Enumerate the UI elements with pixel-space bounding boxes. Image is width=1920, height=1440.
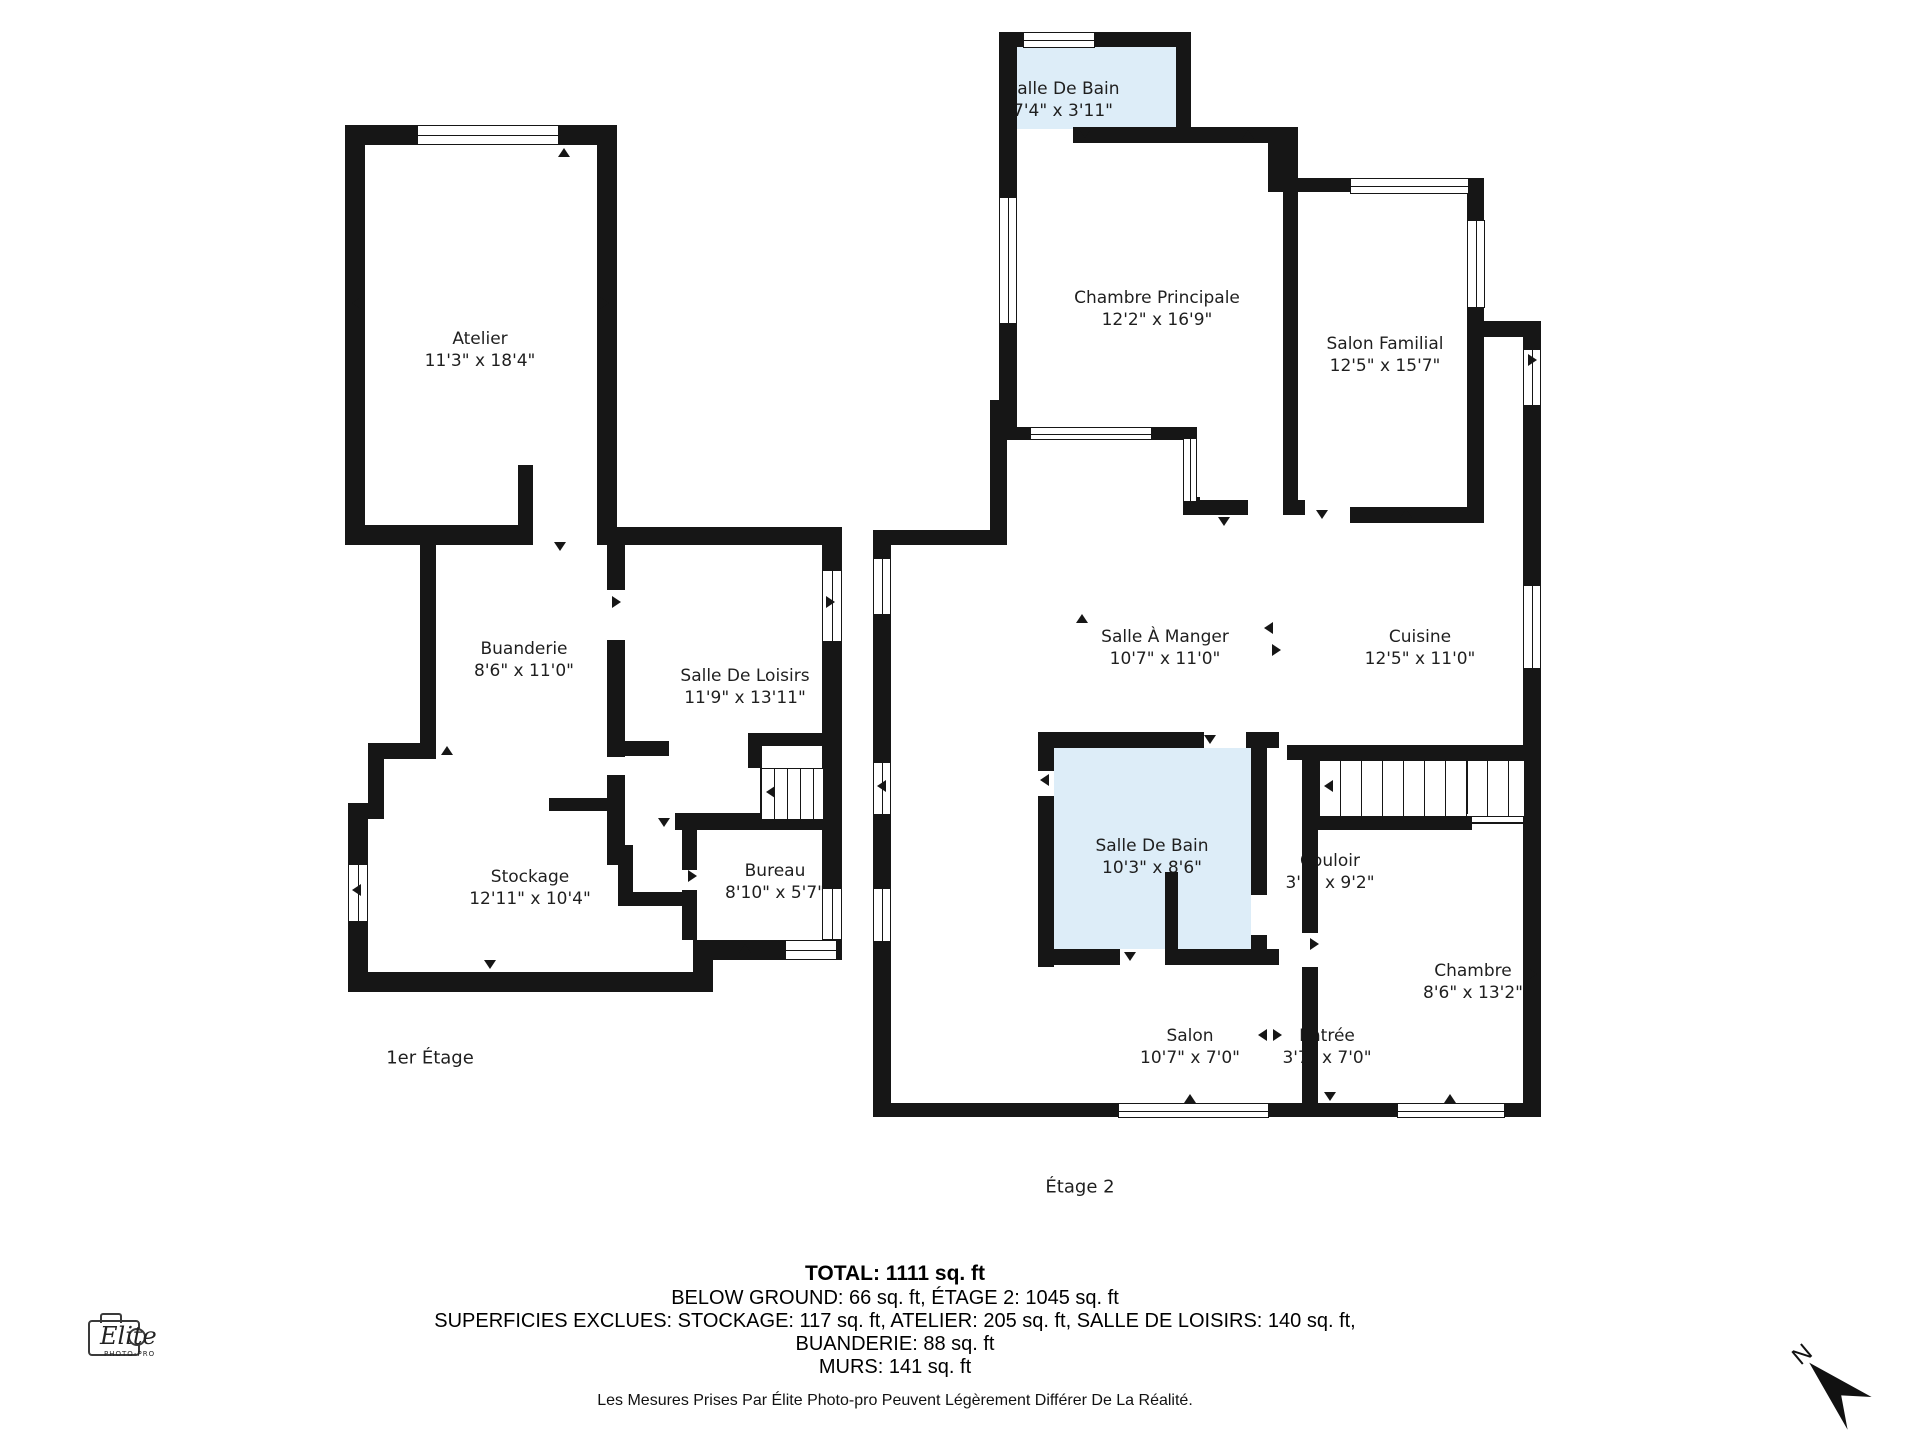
room-label-stockage: Stockage 12'11" x 10'4" xyxy=(469,866,591,910)
room-name: Salle De Bain xyxy=(1095,835,1208,857)
door-arrow xyxy=(1076,614,1088,623)
window xyxy=(873,888,891,942)
wall xyxy=(348,803,384,819)
wall xyxy=(345,525,533,545)
summary-line: SUPERFICIES EXCLUES: STOCKAGE: 117 sq. f… xyxy=(0,1310,1790,1333)
door-arrow xyxy=(554,542,566,551)
room-dims: 10'7" x 7'0" xyxy=(1140,1047,1240,1069)
door-arrow xyxy=(1287,272,1296,284)
wall xyxy=(1038,949,1120,965)
wall xyxy=(1302,815,1472,830)
summary-line: BELOW GROUND: 66 sq. ft, ÉTAGE 2: 1045 s… xyxy=(0,1287,1790,1310)
wall xyxy=(1176,32,1191,127)
door-arrow xyxy=(352,297,361,309)
wall xyxy=(873,813,891,888)
door-arrow xyxy=(826,596,835,608)
window xyxy=(999,197,1017,324)
stairs-direction-arrow xyxy=(766,786,775,798)
wall xyxy=(1523,667,1541,1117)
wall xyxy=(990,400,1007,543)
room-label-salle-a-manger: Salle À Manger 10'7" x 11'0" xyxy=(1101,626,1229,670)
room-label-cuisine: Cuisine 12'5" x 11'0" xyxy=(1365,626,1476,670)
wall xyxy=(1251,748,1267,895)
window xyxy=(1397,1103,1505,1118)
room-name: Salle De Bain xyxy=(1006,78,1119,100)
door-arrow xyxy=(352,884,361,896)
wall xyxy=(999,32,1017,197)
floor-label-1: 1er Étage xyxy=(386,1048,474,1069)
wall xyxy=(597,125,617,545)
room-dims: 3'7" x 9'2" xyxy=(1285,872,1374,894)
wall xyxy=(1038,732,1204,748)
door-arrow xyxy=(558,148,570,157)
stair-landing-line xyxy=(1466,761,1468,814)
door-arrow xyxy=(1124,952,1136,961)
wall xyxy=(1246,732,1279,748)
room-name: Chambre xyxy=(1423,960,1523,982)
stairs-direction-arrow xyxy=(1324,780,1333,792)
room-label-chambre-principale: Chambre Principale 12'2" x 16'9" xyxy=(1074,287,1240,331)
room-label-buanderie: Buanderie 8'6" x 11'0" xyxy=(474,638,574,682)
door-arrow xyxy=(484,960,496,969)
room-label-bureau: Bureau 8'10" x 5'7" xyxy=(725,860,825,904)
room-name: Entrée xyxy=(1282,1025,1371,1047)
wall xyxy=(597,527,842,545)
wall xyxy=(549,798,607,811)
room-label-salon: Salon 10'7" x 7'0" xyxy=(1140,1025,1240,1069)
wall xyxy=(368,759,384,805)
wall xyxy=(1467,337,1484,523)
door-arrow xyxy=(1204,735,1216,744)
room-name: Salon Familial xyxy=(1326,333,1443,355)
wall xyxy=(1003,427,1030,440)
wall xyxy=(1287,745,1541,760)
wall xyxy=(822,545,842,570)
wall xyxy=(1350,507,1484,523)
wall xyxy=(420,545,436,745)
wall xyxy=(873,940,891,1117)
staircase xyxy=(1318,760,1525,817)
door-arrow xyxy=(1258,1029,1267,1041)
wall xyxy=(822,640,842,888)
summary-line: MURS: 141 sq. ft xyxy=(0,1356,1790,1379)
room-name: Stockage xyxy=(469,866,591,888)
wall xyxy=(1038,796,1054,967)
window xyxy=(873,558,891,615)
floor-plan-document: Atelier 11'3" x 18'4" Buanderie 8'6" x 1… xyxy=(0,0,1920,1440)
window xyxy=(822,888,842,940)
room-dims: 8'6" x 11'0" xyxy=(474,660,574,682)
door-arrow xyxy=(658,818,670,827)
window xyxy=(1523,585,1541,669)
window xyxy=(1118,1103,1269,1118)
wall xyxy=(618,892,686,906)
door-arrow xyxy=(1444,1094,1456,1103)
room-dims: 3'7" x 7'0" xyxy=(1282,1047,1371,1069)
door-arrow xyxy=(1272,644,1281,656)
logo: Elite PHOTO-PRO xyxy=(88,1310,168,1370)
window xyxy=(1350,178,1469,194)
wall xyxy=(348,819,368,864)
wall xyxy=(1302,967,1318,1107)
wall xyxy=(1073,127,1298,143)
wall xyxy=(1198,500,1248,515)
logo-brand: Elite xyxy=(100,1322,157,1350)
room-label-salle-de-bain-haut: Salle De Bain 7'4" x 3'11" xyxy=(1006,78,1119,122)
sliding-door xyxy=(1183,438,1197,502)
door-arrow xyxy=(1184,1094,1196,1103)
door-arrow xyxy=(1528,354,1537,366)
door-arrow xyxy=(1218,517,1230,526)
room-label-atelier: Atelier 11'3" x 18'4" xyxy=(425,328,536,372)
wall xyxy=(1283,178,1350,192)
room-name: Atelier xyxy=(425,328,536,350)
room-label-salon-familial: Salon Familial 12'5" x 15'7" xyxy=(1326,333,1443,377)
wall xyxy=(873,530,891,558)
logo-subtitle: PHOTO-PRO xyxy=(104,1350,155,1358)
wall xyxy=(748,733,762,768)
room-name: Salle De Loisirs xyxy=(680,665,809,687)
door-arrow xyxy=(688,870,697,882)
wall xyxy=(873,530,1007,545)
wall xyxy=(607,545,625,590)
wall xyxy=(368,743,436,759)
door-arrow xyxy=(1324,1092,1336,1101)
north-arrow-icon xyxy=(1798,1353,1878,1433)
room-dims: 11'9" x 13'11" xyxy=(680,687,809,709)
room-dims: 11'3" x 18'4" xyxy=(425,350,536,372)
door-arrow xyxy=(1040,774,1049,786)
window xyxy=(785,940,837,960)
wall xyxy=(348,972,713,992)
room-name: Chambre Principale xyxy=(1074,287,1240,309)
disclaimer-text: Les Mesures Prises Par Élite Photo-pro P… xyxy=(0,1392,1790,1410)
door-arrow xyxy=(441,746,453,755)
wall xyxy=(518,465,533,525)
area-summary: TOTAL: 1111 sq. ft BELOW GROUND: 66 sq. … xyxy=(0,1262,1790,1379)
total-area: TOTAL: 1111 sq. ft xyxy=(0,1262,1790,1285)
room-name: Salle À Manger xyxy=(1101,626,1229,648)
floor-label-text: 1er Étage xyxy=(386,1048,474,1069)
wall xyxy=(345,125,365,545)
window xyxy=(1467,220,1485,308)
room-name: Salon xyxy=(1140,1025,1240,1047)
room-dims: 12'2" x 16'9" xyxy=(1074,309,1240,331)
room-dims: 8'10" x 5'7" xyxy=(725,882,825,904)
door-arrow xyxy=(1079,129,1091,138)
wall xyxy=(607,640,625,757)
summary-line: BUANDERIE: 88 sq. ft xyxy=(0,1333,1790,1356)
wall xyxy=(1165,949,1279,965)
wall xyxy=(1503,1103,1541,1117)
door-arrow xyxy=(1310,938,1319,950)
floor-label-text: Étage 2 xyxy=(1045,1177,1114,1198)
room-dims: 10'3" x 8'6" xyxy=(1095,857,1208,879)
floor-label-2: Étage 2 xyxy=(1045,1177,1114,1198)
door-arrow xyxy=(1242,130,1254,139)
door-arrow xyxy=(739,944,751,953)
room-dims: 12'11" x 10'4" xyxy=(469,888,591,910)
north-compass: N xyxy=(1780,1335,1890,1435)
room-dims: 8'6" x 13'2" xyxy=(1423,982,1523,1004)
wall xyxy=(1523,404,1541,585)
wall xyxy=(873,613,891,762)
room-label-entree: Entrée 3'7" x 7'0" xyxy=(1282,1025,1371,1069)
door-arrow xyxy=(877,780,886,792)
stair-landing-line xyxy=(1472,822,1523,824)
wall xyxy=(1467,178,1484,220)
wall xyxy=(682,830,697,870)
wall xyxy=(1038,732,1054,771)
door-arrow xyxy=(1264,622,1273,634)
room-dims: 12'5" x 15'7" xyxy=(1326,355,1443,377)
door-arrow xyxy=(1285,352,1294,364)
room-dims: 7'4" x 3'11" xyxy=(1006,100,1119,122)
room-label-salle-de-loisirs: Salle De Loisirs 11'9" x 13'11" xyxy=(680,665,809,709)
door-arrow xyxy=(612,596,621,608)
door-arrow xyxy=(1528,968,1537,980)
wall xyxy=(1293,500,1305,515)
room-name: Couloir xyxy=(1285,850,1374,872)
wall xyxy=(1302,745,1318,933)
wall xyxy=(1523,321,1541,349)
door-arrow xyxy=(1273,1029,1282,1041)
room-dims: 10'7" x 11'0" xyxy=(1101,648,1229,670)
door-arrow xyxy=(1400,509,1412,518)
room-name: Buanderie xyxy=(474,638,574,660)
wall xyxy=(1165,872,1178,965)
window xyxy=(417,125,559,145)
sliding-door xyxy=(1030,427,1152,440)
wall xyxy=(625,741,669,756)
room-label-salle-de-bain-bas: Salle De Bain 10'3" x 8'6" xyxy=(1095,835,1208,879)
door-arrow xyxy=(600,297,609,309)
room-name: Bureau xyxy=(725,860,825,882)
wall xyxy=(1267,1103,1397,1117)
room-dims: 12'5" x 11'0" xyxy=(1365,648,1476,670)
door-arrow xyxy=(1316,510,1328,519)
room-name: Cuisine xyxy=(1365,626,1476,648)
room-label-couloir: Couloir 3'7" x 9'2" xyxy=(1285,850,1374,894)
window xyxy=(1023,32,1095,48)
wall xyxy=(873,1103,1118,1117)
room-label-chambre: Chambre 8'6" x 13'2" xyxy=(1423,960,1523,1004)
